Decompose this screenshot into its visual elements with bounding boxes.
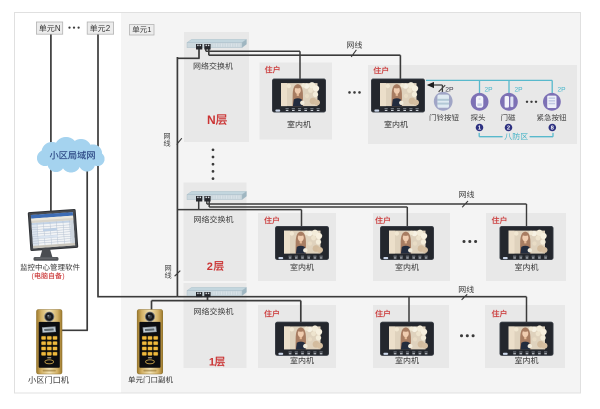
svg-text:2P: 2P	[485, 86, 494, 93]
svg-text:N: N	[207, 113, 216, 127]
svg-text:): )	[62, 273, 64, 280]
svg-text:2: 2	[207, 261, 213, 273]
svg-text:N: N	[55, 24, 61, 33]
svg-text:1: 1	[147, 25, 151, 34]
svg-text:2P: 2P	[515, 86, 524, 93]
svg-text:2P: 2P	[445, 87, 454, 94]
svg-text:2P: 2P	[558, 86, 567, 93]
svg-text:2: 2	[507, 126, 510, 132]
svg-text:2: 2	[106, 24, 111, 33]
svg-text:1: 1	[209, 356, 215, 368]
